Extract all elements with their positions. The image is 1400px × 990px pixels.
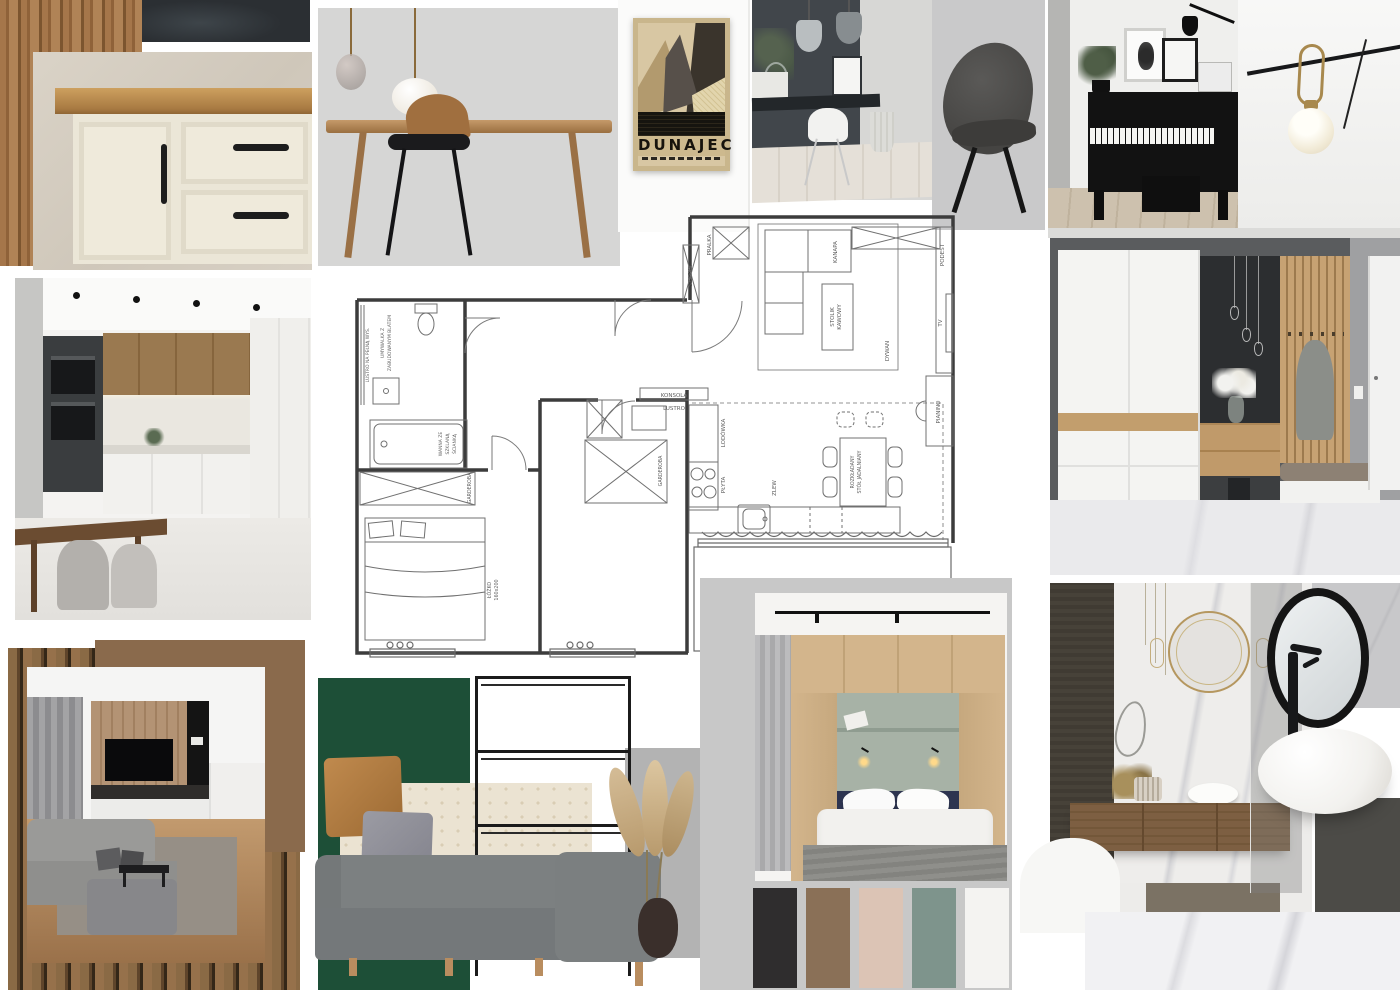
plant-on-counter <box>143 428 165 446</box>
pendant-light <box>1165 583 1166 675</box>
plan-label-lozko1: ŁÓŻKO <box>486 582 493 600</box>
sofa-leg <box>535 958 543 976</box>
plan-label-szafka: SZAFKA <box>688 265 694 287</box>
glassware <box>1198 62 1232 92</box>
plan-label-lodowka: LODÓWKA <box>720 419 727 448</box>
books <box>191 737 203 745</box>
poster-title-bar: DUNAJEC <box>638 136 725 156</box>
chair-leg <box>1003 147 1027 214</box>
piano-bench <box>1142 176 1200 212</box>
shelf-board <box>481 684 625 686</box>
pendant-cord <box>808 0 810 22</box>
hallway-photo <box>1050 238 1400 575</box>
plan-label-zlew: ZLEW <box>772 480 778 496</box>
coffee-table-legs <box>123 873 165 887</box>
sage-niche <box>837 693 959 793</box>
waste-bin <box>870 112 894 152</box>
sofa-backrest <box>315 855 573 913</box>
shelf-board <box>475 824 631 827</box>
plan-label-plyta: PŁYTA <box>721 477 727 494</box>
plan-label-pianino: PIANINO <box>936 400 942 424</box>
plan-label-konsola: KONSOLA <box>661 393 688 399</box>
pampas-stem <box>646 850 648 906</box>
piano-leg <box>1218 190 1228 220</box>
sofa-leg <box>349 958 357 976</box>
pendant-light <box>1258 256 1259 344</box>
plan-label-umywalka2: ZABUDOWANYM BLATEM <box>387 315 393 371</box>
cabinet-door <box>79 122 171 260</box>
pendant-cord <box>350 8 352 56</box>
ceiling-spot <box>133 296 140 303</box>
plan-label-dywan: DYWAN <box>885 341 891 361</box>
piano-keyboard <box>1090 128 1214 144</box>
picture-frame <box>832 56 862 96</box>
plan-label-garderoba-a: GARDEROBA <box>467 472 473 503</box>
flowers <box>1212 368 1256 398</box>
pendant-lamp <box>796 20 822 52</box>
door-knob <box>1374 376 1378 380</box>
pendant-glass-lamp <box>336 54 366 90</box>
poster-river <box>638 112 725 136</box>
plan-label-kanapa: KANAPA <box>833 241 839 263</box>
plan-label-podest: PODEST <box>940 243 946 266</box>
dunajec-poster: DUNAJEC <box>633 18 730 171</box>
picture-frame <box>1162 38 1198 82</box>
gray-blanket <box>803 845 1007 881</box>
wood-accent-band <box>1058 413 1198 431</box>
shelf-board <box>481 832 625 834</box>
door-seam <box>1128 250 1130 500</box>
counter <box>103 445 250 454</box>
upper-cabinets-wood <box>103 333 250 395</box>
plan-label-tv: TV <box>938 319 944 327</box>
pendant-light <box>1145 583 1146 645</box>
niche-shelf <box>837 728 959 732</box>
floor <box>752 142 932 203</box>
vanity-sink <box>1188 783 1238 805</box>
faucet-lever <box>1302 656 1320 669</box>
lower-cabinets <box>103 454 250 514</box>
wardrobe-top-band <box>791 635 1005 693</box>
plan-label-pralka: PRALKA <box>707 234 713 255</box>
shelf-board <box>475 750 631 753</box>
plan-label-lozko2: 160x200 <box>494 579 500 600</box>
mirror-inner-ring <box>1176 619 1242 685</box>
drawer-handle-top <box>233 144 289 151</box>
tv-unit-drawers <box>91 799 209 819</box>
table-leg <box>31 540 37 612</box>
marble-floor <box>1050 500 1400 575</box>
ceiling-spot <box>253 304 260 311</box>
marble-texture-swatch <box>1085 912 1400 990</box>
plan-label-wanna3: ŚCIANKĄ <box>451 433 458 454</box>
gold-round-mirror <box>1168 611 1250 693</box>
sofa-leg <box>445 958 453 976</box>
oven <box>51 402 95 440</box>
pendant-bulb <box>1242 328 1251 342</box>
coat-hooks <box>1288 332 1344 336</box>
track-light <box>775 611 990 614</box>
plan-label-wanna1: WANNA ZE <box>438 432 444 457</box>
drawer-seam <box>1142 803 1144 851</box>
ceiling-spot <box>73 292 80 299</box>
drawer-seam <box>1216 803 1218 851</box>
plan-label-umywalka1: UMYWALKA Z <box>380 328 386 358</box>
plan-label-stolik2: KAWOWY <box>837 304 843 330</box>
pampas-grass-photo <box>612 760 707 960</box>
plan-label-stol1: ROZKŁADANY <box>850 455 856 488</box>
gray-chair <box>57 540 109 610</box>
wall-sconce <box>927 755 941 769</box>
poster-caption-strip <box>642 157 720 160</box>
drawer-top <box>181 122 308 184</box>
tv-screen <box>105 739 173 781</box>
drawer-seam <box>1200 450 1280 452</box>
tv-unit <box>91 785 209 799</box>
vessel-sink-photo <box>1258 728 1392 814</box>
divider-band <box>1048 228 1400 238</box>
plan-label-lustro-wys: LUSTRO NA PEŁNĄ WYS. <box>365 328 371 383</box>
sofa-leg <box>635 962 643 986</box>
sofa-photo <box>315 852 661 990</box>
bedroom-panel <box>700 578 1012 990</box>
countertop <box>55 88 312 114</box>
door-handle <box>161 144 167 204</box>
shelf-board <box>481 758 625 760</box>
plan-label-stolik1: STOLIK <box>830 307 836 327</box>
splashback <box>103 395 250 445</box>
white-wardrobe <box>1058 250 1200 500</box>
drawer-seam <box>1058 465 1198 467</box>
bedroom-photo <box>755 593 1007 881</box>
brass-loop <box>1296 43 1325 106</box>
lamp-globe <box>1288 108 1334 154</box>
chair-seat <box>388 134 470 150</box>
pendant-bulb <box>1254 342 1263 356</box>
poster-title: DUNAJEC <box>638 136 725 154</box>
faucet-body <box>1288 652 1298 742</box>
ceiling-spot <box>193 300 200 307</box>
track-spot <box>895 614 899 623</box>
plan-label-lustro: LUSTRO <box>663 406 685 412</box>
thermostat <box>1354 386 1363 399</box>
striped-box <box>1134 777 1162 801</box>
palette-swatch <box>912 888 956 988</box>
kitchen-photo <box>15 278 311 620</box>
bench-cushion <box>1280 463 1380 481</box>
moodboard-canvas: DUNAJEC <box>0 0 1400 990</box>
plan-label-stol2: STÓŁ JADALNIANY <box>856 450 863 493</box>
palette-swatch <box>859 888 903 988</box>
frame-art <box>1138 42 1154 70</box>
wood-drawer-unit <box>1200 423 1280 476</box>
shopping-bag <box>1228 478 1250 500</box>
desk-nook-photo <box>752 0 932 200</box>
plan-label-wanna2: SZKLANĄ <box>445 433 451 455</box>
gray-coat <box>1296 340 1334 440</box>
sofa-seat-base <box>315 908 573 960</box>
pendant-lamp <box>836 12 862 44</box>
cabinet-face <box>73 114 312 264</box>
white-door <box>1368 256 1400 490</box>
desk-lamp-head <box>1182 16 1198 36</box>
wall-lamp-photo <box>1238 0 1400 230</box>
shelf-board <box>475 676 631 679</box>
coffee-table <box>119 865 169 873</box>
pendant-light <box>1234 256 1235 308</box>
tall-cabinets <box>250 318 311 518</box>
palette-swatch <box>753 888 797 988</box>
gray-chair <box>111 544 157 608</box>
white-chair-seat <box>808 108 848 142</box>
pendant-bulb <box>1230 306 1239 320</box>
track-spot <box>815 614 819 623</box>
living-room-photo <box>27 667 265 963</box>
palette-swatch <box>965 888 1009 988</box>
palette-swatch <box>806 888 850 988</box>
dark-stone-swatch <box>142 0 310 42</box>
dark-vase <box>638 898 678 958</box>
drawer-bottom <box>181 190 308 254</box>
plan-label-garderoba-b: GARDEROBA <box>658 455 664 486</box>
curtain <box>755 635 791 871</box>
piano-leg <box>1094 190 1104 220</box>
pendant-light <box>1246 256 1247 330</box>
sofa-chaise <box>87 879 177 935</box>
kitchen-cabinet-photo <box>33 52 312 270</box>
drawer-handle-bottom <box>233 212 289 219</box>
pendant-cord <box>414 8 416 80</box>
color-palette <box>753 888 1009 988</box>
oven <box>51 356 95 394</box>
piano-photo <box>1048 0 1238 228</box>
oval-sconce <box>1150 638 1164 668</box>
dark-tile-swatch <box>1315 798 1400 912</box>
bench-base <box>1280 481 1380 503</box>
white-basket <box>752 72 788 98</box>
desk-chair-photo <box>932 0 1045 230</box>
vase <box>1228 396 1244 423</box>
wall-sconce <box>857 755 871 769</box>
